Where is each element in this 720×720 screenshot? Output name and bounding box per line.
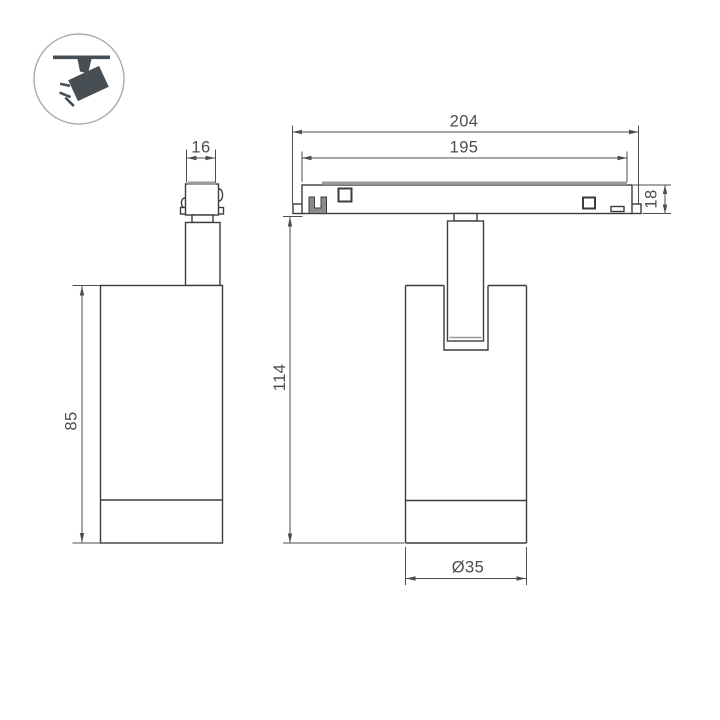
arrowhead (288, 534, 292, 544)
arrowhead (663, 205, 667, 214)
arrowhead (293, 130, 303, 134)
arrowhead (80, 533, 84, 543)
track-adapter (186, 184, 219, 215)
lamp-body (101, 286, 223, 544)
adapter-top-plate (188, 182, 216, 185)
arrowhead (629, 130, 639, 134)
dimension-label: 16 (191, 139, 210, 157)
dimension-label: 18 (643, 189, 661, 208)
dimension-fixture-height: 114 (271, 217, 405, 544)
plate-screw-left (339, 189, 352, 202)
adapter-neck (192, 215, 213, 223)
icon-ceiling-bar (53, 56, 110, 60)
arrowhead (663, 185, 667, 194)
side-view: 204 195 18 114 (271, 113, 671, 586)
dimension-label: 204 (450, 113, 479, 131)
dimension-plate-length: 195 (302, 139, 627, 183)
drawing-canvas: 16 85 (0, 0, 720, 720)
dimension-body-diameter: Ø35 (406, 547, 527, 585)
arrowhead (288, 217, 292, 227)
plate-slot (611, 207, 624, 212)
dimension-label: Ø35 (452, 559, 484, 577)
dimension-label: 114 (271, 364, 289, 392)
pivot-arm (448, 221, 484, 341)
track-plate-tab-right (632, 204, 642, 214)
pivot-stem (186, 223, 221, 286)
arrowhead (517, 576, 527, 580)
arrowhead (618, 156, 628, 160)
plate-screw-right (583, 198, 595, 209)
technical-drawing: 16 85 (0, 0, 720, 720)
arrowhead (406, 576, 416, 580)
dimension-adapter-width: 16 (187, 139, 216, 183)
arrowhead (80, 286, 84, 296)
pivot-neck (454, 214, 477, 222)
track-plate-tab-left (293, 204, 303, 214)
dimension-label: 85 (63, 411, 81, 430)
track-plate-top-strip (322, 182, 627, 185)
spotlight-icon (34, 34, 124, 124)
arrowhead (302, 156, 312, 160)
front-view: 16 85 (63, 139, 224, 544)
dimension-label: 195 (450, 139, 479, 157)
dimension-body-height: 85 (63, 286, 101, 544)
